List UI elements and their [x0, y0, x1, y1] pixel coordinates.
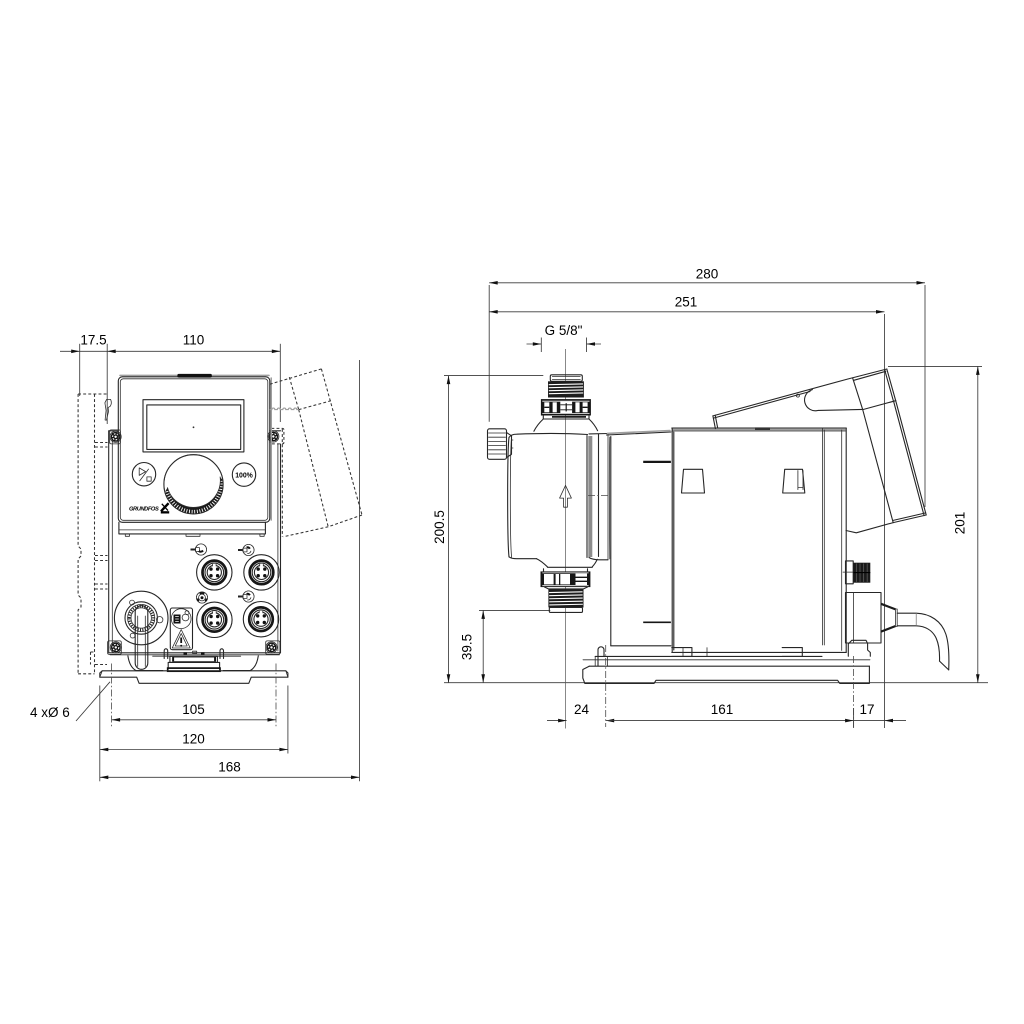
svg-text:24: 24	[574, 702, 590, 717]
svg-text:G 5/8": G 5/8"	[545, 323, 583, 338]
svg-text:100%: 100%	[235, 473, 253, 480]
svg-text:161: 161	[711, 702, 734, 717]
svg-text:168: 168	[218, 760, 241, 775]
svg-text:17.5: 17.5	[80, 333, 106, 348]
svg-text:4 xØ 6: 4 xØ 6	[30, 705, 70, 720]
svg-text:201: 201	[953, 512, 968, 535]
svg-text:GRUNDFOS: GRUNDFOS	[129, 507, 159, 513]
svg-text:251: 251	[675, 294, 698, 309]
svg-text:105: 105	[182, 702, 205, 717]
svg-text:110: 110	[183, 333, 205, 348]
svg-text:280: 280	[696, 267, 719, 282]
svg-text:39.5: 39.5	[460, 634, 475, 660]
svg-text:200.5: 200.5	[432, 510, 447, 544]
svg-text:17: 17	[859, 702, 874, 717]
svg-text:120: 120	[182, 732, 205, 747]
